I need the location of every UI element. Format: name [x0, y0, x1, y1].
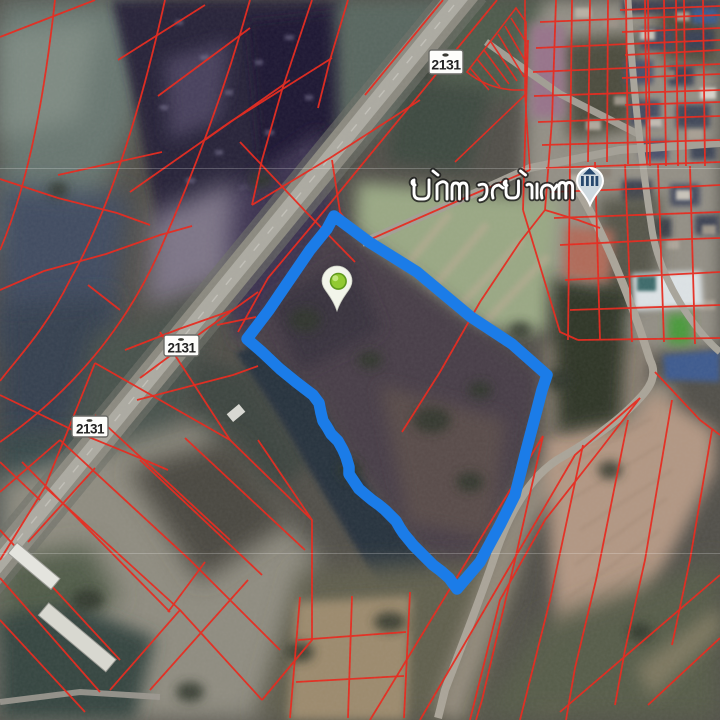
svg-text:2131: 2131 — [167, 341, 196, 356]
svg-text:2131: 2131 — [431, 57, 461, 73]
svg-text:2131: 2131 — [76, 422, 105, 437]
